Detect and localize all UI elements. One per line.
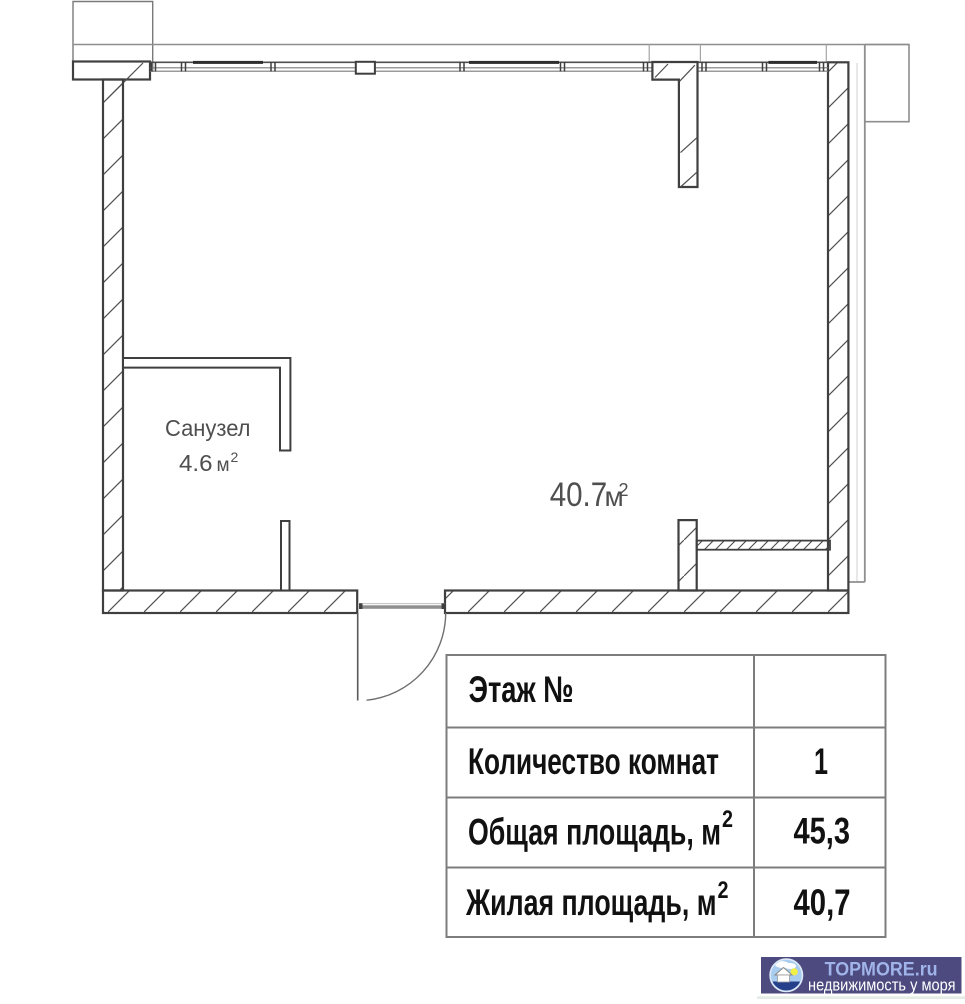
svg-text:недвижимость у моря: недвижимость у моря <box>808 976 956 994</box>
svg-text:2: 2 <box>231 449 239 465</box>
svg-text:40,7: 40,7 <box>794 882 851 923</box>
svg-text:40.7: 40.7 <box>550 476 608 514</box>
svg-text:Жилая площадь, м: Жилая площадь, м <box>465 882 716 923</box>
svg-text:Санузел: Санузел <box>165 415 251 441</box>
svg-text:2: 2 <box>718 877 729 904</box>
svg-text:Количество комнат: Количество комнат <box>468 741 719 782</box>
svg-text:м: м <box>217 455 230 476</box>
svg-text:1: 1 <box>814 741 828 782</box>
svg-text:2: 2 <box>722 806 733 833</box>
svg-text:Этаж №: Этаж № <box>469 669 574 710</box>
svg-text:45,3: 45,3 <box>794 811 851 852</box>
svg-text:Общая площадь, м: Общая площадь, м <box>468 812 721 853</box>
svg-text:2: 2 <box>619 480 629 500</box>
svg-text:4.6: 4.6 <box>179 450 213 476</box>
